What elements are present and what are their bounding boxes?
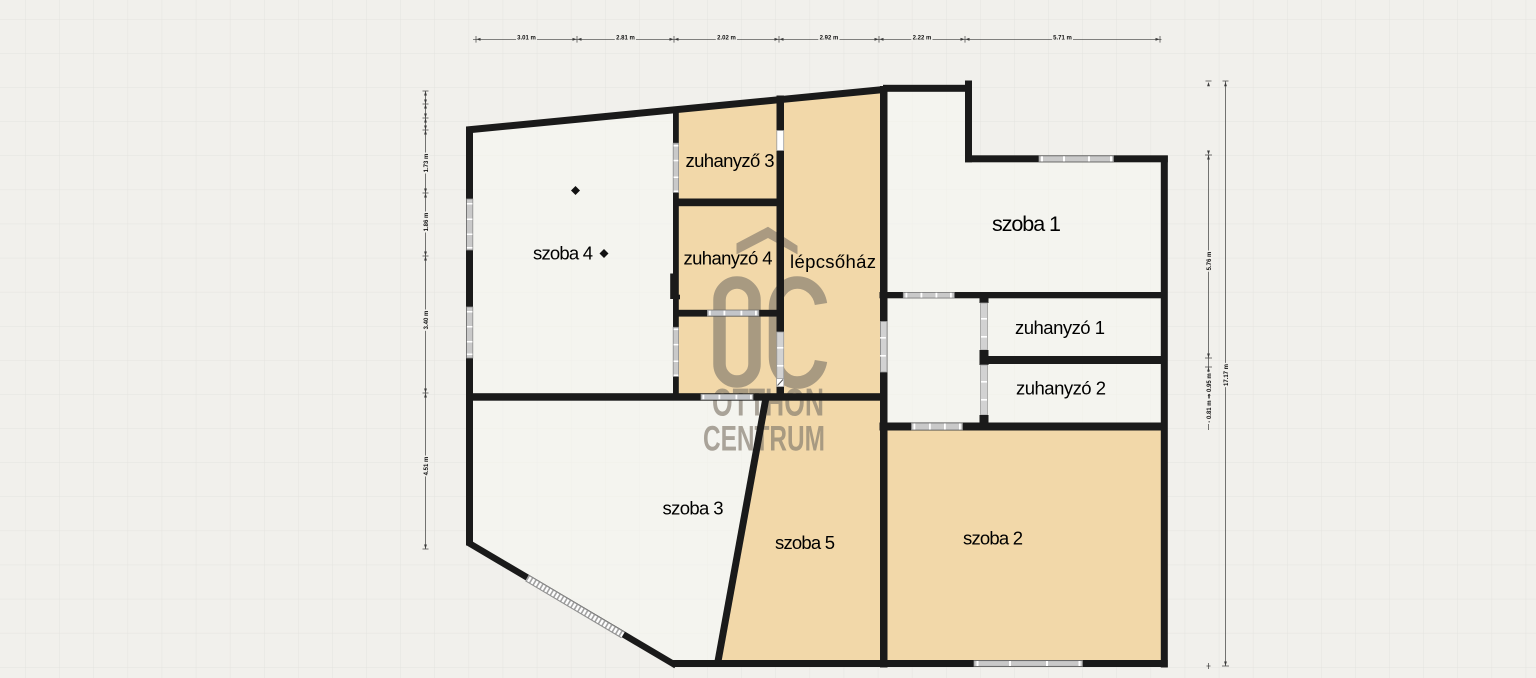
svg-text:3.40 m: 3.40 m: [424, 311, 430, 330]
svg-text:2.92 m: 2.92 m: [820, 36, 839, 42]
svg-text:zuhanyzó 4: zuhanyzó 4: [684, 248, 773, 269]
svg-text:1.73 m: 1.73 m: [424, 154, 430, 173]
svg-text:zuhanyző 3: zuhanyző 3: [686, 150, 775, 171]
svg-text:szoba 4: szoba 4: [533, 243, 593, 264]
svg-text:5.76 m: 5.76 m: [1207, 252, 1213, 271]
svg-text:- 0.81 m ⇒ 0.95 m: - 0.81 m ⇒ 0.95 m: [1207, 373, 1213, 422]
svg-text:szoba 5: szoba 5: [775, 532, 835, 553]
svg-text:szoba 3: szoba 3: [663, 498, 724, 519]
svg-text:2.81 m: 2.81 m: [616, 36, 635, 42]
svg-text:zuhanyzó 1: zuhanyzó 1: [1015, 317, 1105, 338]
svg-text:5.71 m: 5.71 m: [1053, 36, 1072, 42]
svg-text:1.86 m: 1.86 m: [424, 213, 430, 232]
svg-text:17.17 m: 17.17 m: [1224, 364, 1230, 386]
svg-text:2.22 m: 2.22 m: [913, 36, 932, 42]
svg-text:szoba 2: szoba 2: [963, 528, 1023, 549]
svg-text:lépcsőház: lépcsőház: [790, 251, 876, 272]
svg-text:szoba 1: szoba 1: [992, 212, 1061, 236]
svg-text:2.02 m: 2.02 m: [717, 36, 736, 42]
svg-text:zuhanyzó 2: zuhanyzó 2: [1016, 378, 1106, 399]
svg-text:3.01 m: 3.01 m: [517, 36, 536, 42]
svg-text:4.51 m: 4.51 m: [424, 457, 430, 476]
